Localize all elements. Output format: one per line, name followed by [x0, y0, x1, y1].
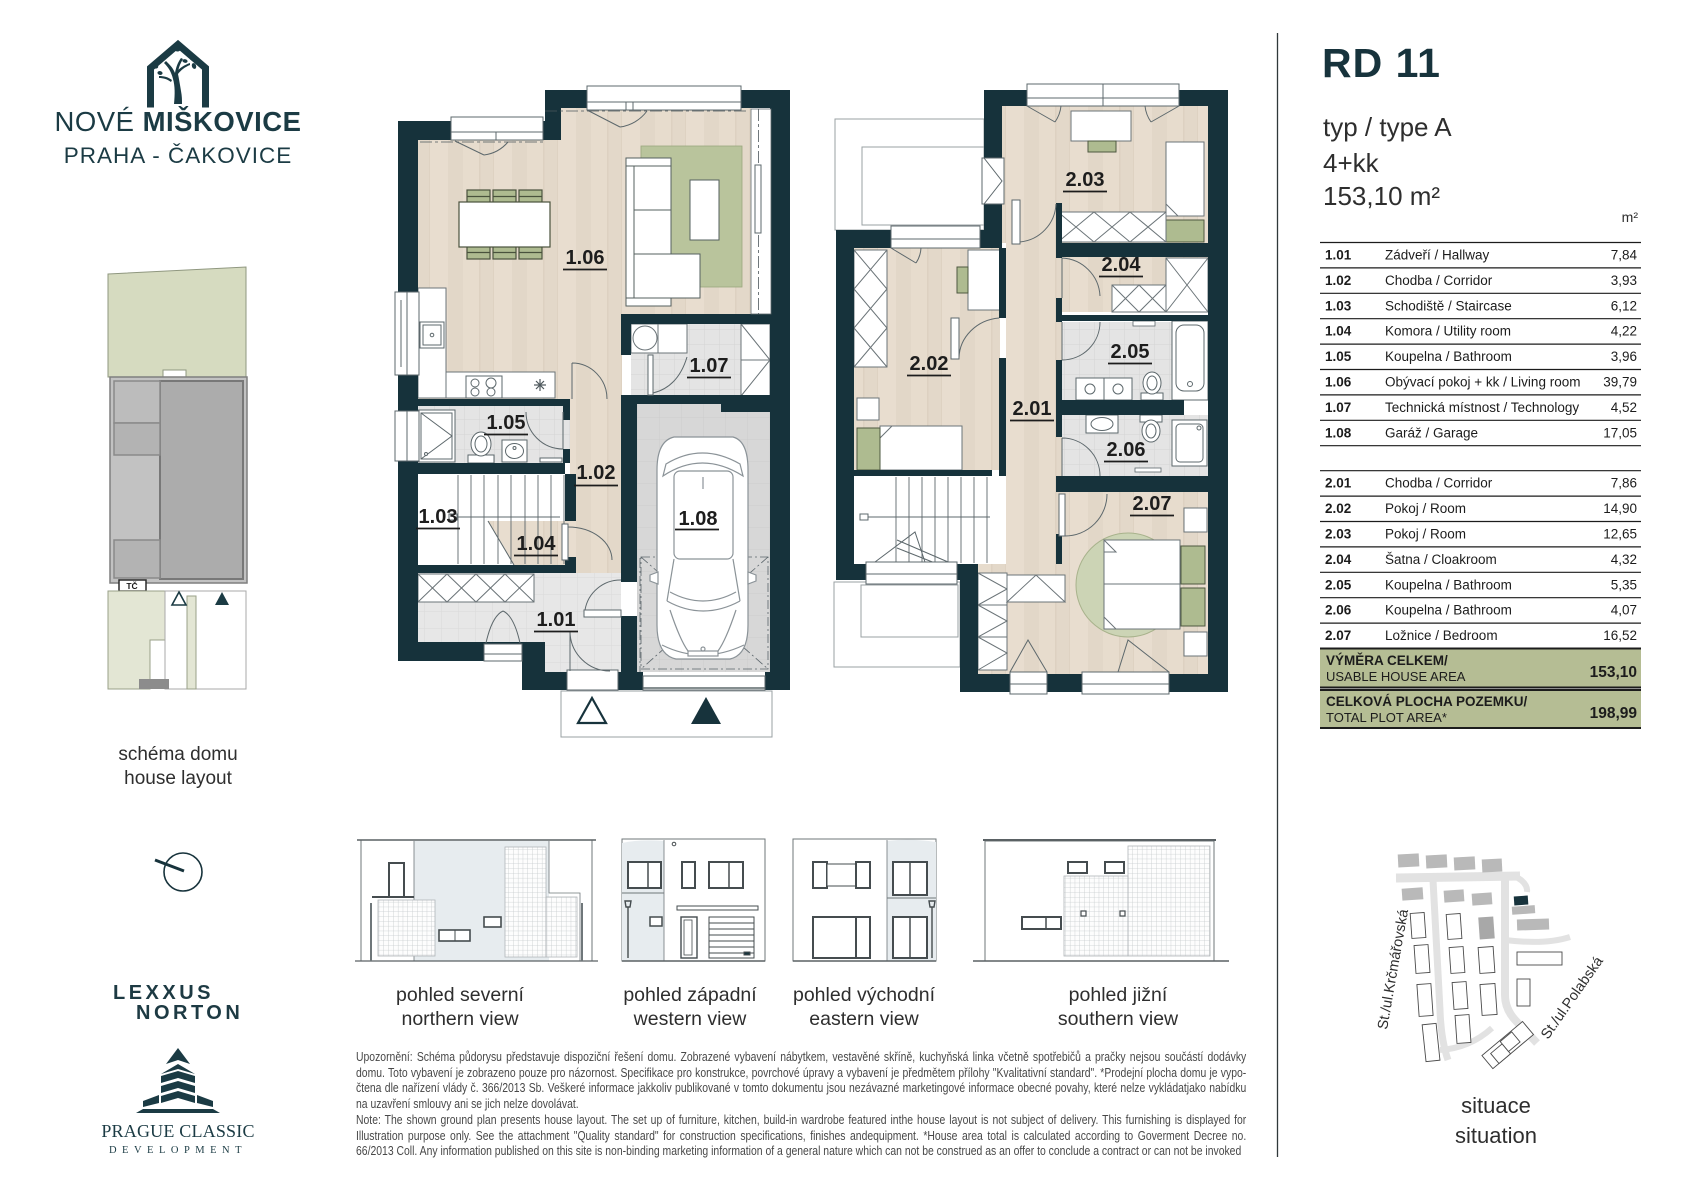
svg-text:Schodiště / Staircase: Schodiště / Staircase [1385, 298, 1512, 313]
svg-text:1.07: 1.07 [1325, 400, 1351, 415]
svg-text:situace: situace [1461, 1093, 1531, 1118]
svg-text:TOTAL PLOT AREA*: TOTAL PLOT AREA* [1326, 710, 1447, 725]
svg-text:PRAHA - ČAKOVICE: PRAHA - ČAKOVICE [64, 143, 293, 168]
svg-text:USABLE HOUSE AREA: USABLE HOUSE AREA [1326, 669, 1466, 684]
svg-text:2.03: 2.03 [1066, 169, 1105, 191]
svg-text:14,90: 14,90 [1603, 501, 1637, 516]
svg-text:Chodba / Corridor: Chodba / Corridor [1385, 273, 1493, 288]
svg-text:12,65: 12,65 [1603, 527, 1637, 542]
svg-text:2.07: 2.07 [1133, 493, 1172, 515]
svg-text:LEXXUS: LEXXUS [113, 982, 214, 1004]
svg-text:2.01: 2.01 [1013, 398, 1052, 420]
svg-text:2.02: 2.02 [910, 353, 949, 375]
svg-text:1.02: 1.02 [1325, 273, 1351, 288]
svg-text:1.02: 1.02 [577, 462, 616, 484]
svg-text:Ložnice / Bedroom: Ložnice / Bedroom [1385, 628, 1498, 643]
svg-text:Šatna / Cloakroom: Šatna / Cloakroom [1385, 552, 1497, 567]
svg-text:4,32: 4,32 [1611, 552, 1637, 567]
svg-text:2.01: 2.01 [1325, 476, 1352, 491]
svg-text:NOVÉ MIŠKOVICE: NOVÉ MIŠKOVICE [55, 105, 302, 137]
svg-text:pohled západní: pohled západní [623, 984, 757, 1006]
svg-text:17,05: 17,05 [1603, 425, 1637, 440]
svg-text:1.03: 1.03 [419, 506, 458, 528]
svg-text:Zádveří / Hallway: Zádveří / Hallway [1385, 248, 1490, 263]
svg-text:CELKOVÁ PLOCHA POZEMKU/: CELKOVÁ PLOCHA POZEMKU/ [1326, 694, 1528, 709]
svg-text:153,10 m²: 153,10 m² [1323, 181, 1440, 211]
svg-text:4,52: 4,52 [1611, 400, 1637, 415]
svg-text:m²: m² [1622, 209, 1639, 225]
svg-text:schéma domu: schéma domu [118, 744, 237, 765]
svg-text:Pokoj / Room: Pokoj / Room [1385, 501, 1466, 516]
svg-text:house layout: house layout [124, 768, 232, 789]
svg-text:4+kk: 4+kk [1323, 148, 1380, 178]
svg-text:5,35: 5,35 [1611, 577, 1637, 592]
svg-text:TČ: TČ [126, 580, 137, 591]
svg-text:pohled jižní: pohled jižní [1069, 984, 1168, 1006]
svg-text:2.05: 2.05 [1325, 577, 1352, 592]
svg-text:DEVELOPMENT: DEVELOPMENT [109, 1145, 247, 1156]
svg-text:VÝMĚRA CELKEM/: VÝMĚRA CELKEM/ [1326, 653, 1448, 668]
svg-text:1.01: 1.01 [1325, 248, 1352, 263]
svg-text:1.07: 1.07 [690, 355, 729, 377]
svg-text:153,10: 153,10 [1590, 664, 1637, 681]
svg-text:39,79: 39,79 [1603, 375, 1637, 390]
svg-text:7,84: 7,84 [1611, 248, 1638, 263]
svg-text:2.02: 2.02 [1325, 501, 1351, 516]
svg-text:1.08: 1.08 [1325, 425, 1352, 440]
svg-text:16,52: 16,52 [1603, 628, 1637, 643]
svg-text:southern view: southern view [1058, 1008, 1179, 1030]
svg-text:1.06: 1.06 [566, 247, 605, 269]
svg-text:pohled východní: pohled východní [793, 984, 936, 1006]
svg-text:northern view: northern view [401, 1008, 519, 1030]
svg-text:Koupelna / Bathroom: Koupelna / Bathroom [1385, 349, 1512, 364]
svg-text:6,12: 6,12 [1611, 298, 1637, 313]
svg-text:2.06: 2.06 [1107, 439, 1146, 461]
svg-text:2.06: 2.06 [1325, 603, 1352, 618]
svg-text:1.05: 1.05 [487, 412, 526, 434]
svg-text:Garáž / Garage: Garáž / Garage [1385, 425, 1478, 440]
svg-text:Obývací pokoj + kk / Living ro: Obývací pokoj + kk / Living room [1385, 375, 1580, 390]
svg-text:1.01: 1.01 [537, 609, 576, 631]
svg-text:Pokoj / Room: Pokoj / Room [1385, 527, 1466, 542]
svg-text:1.05: 1.05 [1325, 349, 1352, 364]
svg-text:Technická místnost / Technolog: Technická místnost / Technology [1385, 400, 1579, 415]
svg-text:3,96: 3,96 [1611, 349, 1637, 364]
svg-text:NORTON: NORTON [136, 1002, 243, 1024]
svg-text:1.04: 1.04 [1325, 324, 1352, 339]
svg-text:1.03: 1.03 [1325, 298, 1352, 313]
svg-text:2.05: 2.05 [1111, 341, 1150, 363]
svg-text:eastern view: eastern view [809, 1008, 919, 1030]
svg-text:typ / type A: typ / type A [1323, 112, 1452, 142]
svg-text:198,99: 198,99 [1590, 705, 1638, 722]
svg-text:1.06: 1.06 [1325, 375, 1352, 390]
svg-text:1.04: 1.04 [517, 533, 557, 555]
svg-text:2.07: 2.07 [1325, 628, 1351, 643]
svg-text:western view: western view [633, 1008, 748, 1030]
svg-text:Koupelna / Bathroom: Koupelna / Bathroom [1385, 577, 1512, 592]
svg-text:Koupelna / Bathroom: Koupelna / Bathroom [1385, 603, 1512, 618]
svg-text:2.04: 2.04 [1102, 254, 1142, 276]
svg-text:7,86: 7,86 [1611, 476, 1637, 491]
svg-text:1.08: 1.08 [679, 508, 718, 530]
svg-text:Komora / Utility room: Komora / Utility room [1385, 324, 1511, 339]
svg-text:PRAGUE CLASSIC: PRAGUE CLASSIC [101, 1121, 254, 1141]
svg-text:RD 11: RD 11 [1322, 40, 1441, 86]
svg-text:4,22: 4,22 [1611, 324, 1637, 339]
svg-text:situation: situation [1455, 1123, 1537, 1148]
svg-text:2.04: 2.04 [1325, 552, 1352, 567]
svg-text:4,07: 4,07 [1611, 603, 1637, 618]
svg-text:pohled severní: pohled severní [396, 984, 525, 1006]
svg-text:3,93: 3,93 [1611, 273, 1637, 288]
svg-text:2.03: 2.03 [1325, 527, 1352, 542]
svg-text:Chodba / Corridor: Chodba / Corridor [1385, 476, 1493, 491]
